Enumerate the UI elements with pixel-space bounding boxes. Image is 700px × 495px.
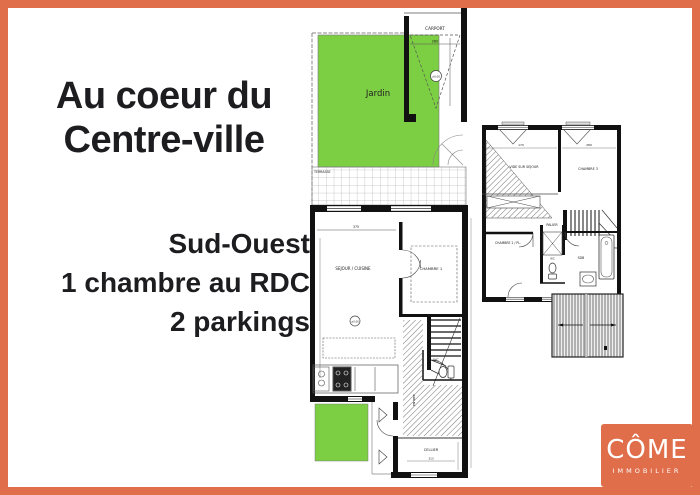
bathroom: SDB xyxy=(565,232,617,286)
logo-brand-text: CÔME xyxy=(606,437,687,463)
wc-upper: WC xyxy=(540,225,565,283)
garden-label: Jardin xyxy=(365,89,390,99)
terrace-label: TERRASSE xyxy=(313,170,331,174)
chambre3-dim: 280 xyxy=(586,143,592,147)
agency-logo: CÔME IMMOBILIER xyxy=(601,424,693,487)
vide-dim: 170 xyxy=(518,143,524,147)
chambre2-label: CHAMBRE 2 / PL. xyxy=(495,241,521,245)
palier-label: PALIER xyxy=(546,223,558,227)
carport-dim: 260 xyxy=(432,40,440,44)
headline-line2: Centre-ville xyxy=(14,118,314,162)
cellier-dim: 313 xyxy=(428,457,434,461)
chambre3-label: CHAMBRE 3 xyxy=(578,167,598,171)
sejour-level: ±0.00 xyxy=(351,320,359,324)
wc-upper-label: WC xyxy=(550,257,555,261)
flyer-canvas: Au coeur du Centre-ville Sud-Ouest 1 cha… xyxy=(0,0,700,495)
sdb-label: SDB xyxy=(578,256,585,260)
storage-room: CELLIER 313 xyxy=(398,438,462,470)
feature-orientation: Sud-Ouest xyxy=(18,224,310,263)
window-swing-icon xyxy=(500,130,590,144)
cellier-label: CELLIER xyxy=(424,448,439,452)
wc-label: WC xyxy=(433,358,439,362)
void-over-living: VIDE SUR SEJOUR CHAMBRE 3 xyxy=(482,130,598,218)
door-swing-icon xyxy=(379,408,387,422)
door-swing-icon xyxy=(379,450,387,464)
sejour-dim: 375 xyxy=(353,225,359,229)
bed-outline xyxy=(411,246,457,302)
carport-label: CARPORT xyxy=(425,26,445,31)
chambre1-label: CHAMBRE 1 xyxy=(420,266,443,271)
feature-bedroom: 1 chambre au RDC xyxy=(18,263,310,302)
carport-level: ±0.00 xyxy=(432,75,440,79)
ground-floor-plan: Jardin TERRASSE CARPORT 260 ±0.00 xyxy=(303,8,475,480)
stove-icon xyxy=(333,367,351,391)
living-room: 375 SEJOUR / CUISINE ±0.00 xyxy=(317,225,396,378)
entree-label: ENTREE xyxy=(412,394,416,406)
garden-area xyxy=(318,35,439,167)
headline: Au coeur du Centre-ville xyxy=(14,74,314,162)
bedroom-1: CHAMBRE 1 xyxy=(399,222,468,317)
entry-corridor xyxy=(372,402,398,478)
sejour-label: SEJOUR / CUISINE xyxy=(335,266,371,271)
vide-label: VIDE SUR SEJOUR xyxy=(509,165,539,169)
toilet-icon xyxy=(549,263,556,273)
toilet-icon xyxy=(439,367,447,378)
roof-deck xyxy=(552,294,623,357)
feature-parking: 2 parkings xyxy=(18,302,310,341)
first-floor-plan: 170 280 VIDE SUR SEJOUR CHAMBRE 3 PALIER xyxy=(478,118,648,363)
kitchen-counter xyxy=(313,338,398,393)
logo-subtitle-text: IMMOBILIER xyxy=(613,467,682,475)
bedroom-2: CHAMBRE 2 / PL. xyxy=(482,233,533,297)
feature-list: Sud-Ouest 1 chambre au RDC 2 parkings xyxy=(18,224,310,342)
terrace-area xyxy=(312,167,466,205)
headline-line1: Au coeur du xyxy=(14,74,314,118)
garden-patch xyxy=(315,404,368,461)
flyer-inner: Au coeur du Centre-ville Sud-Ouest 1 cha… xyxy=(8,8,692,487)
